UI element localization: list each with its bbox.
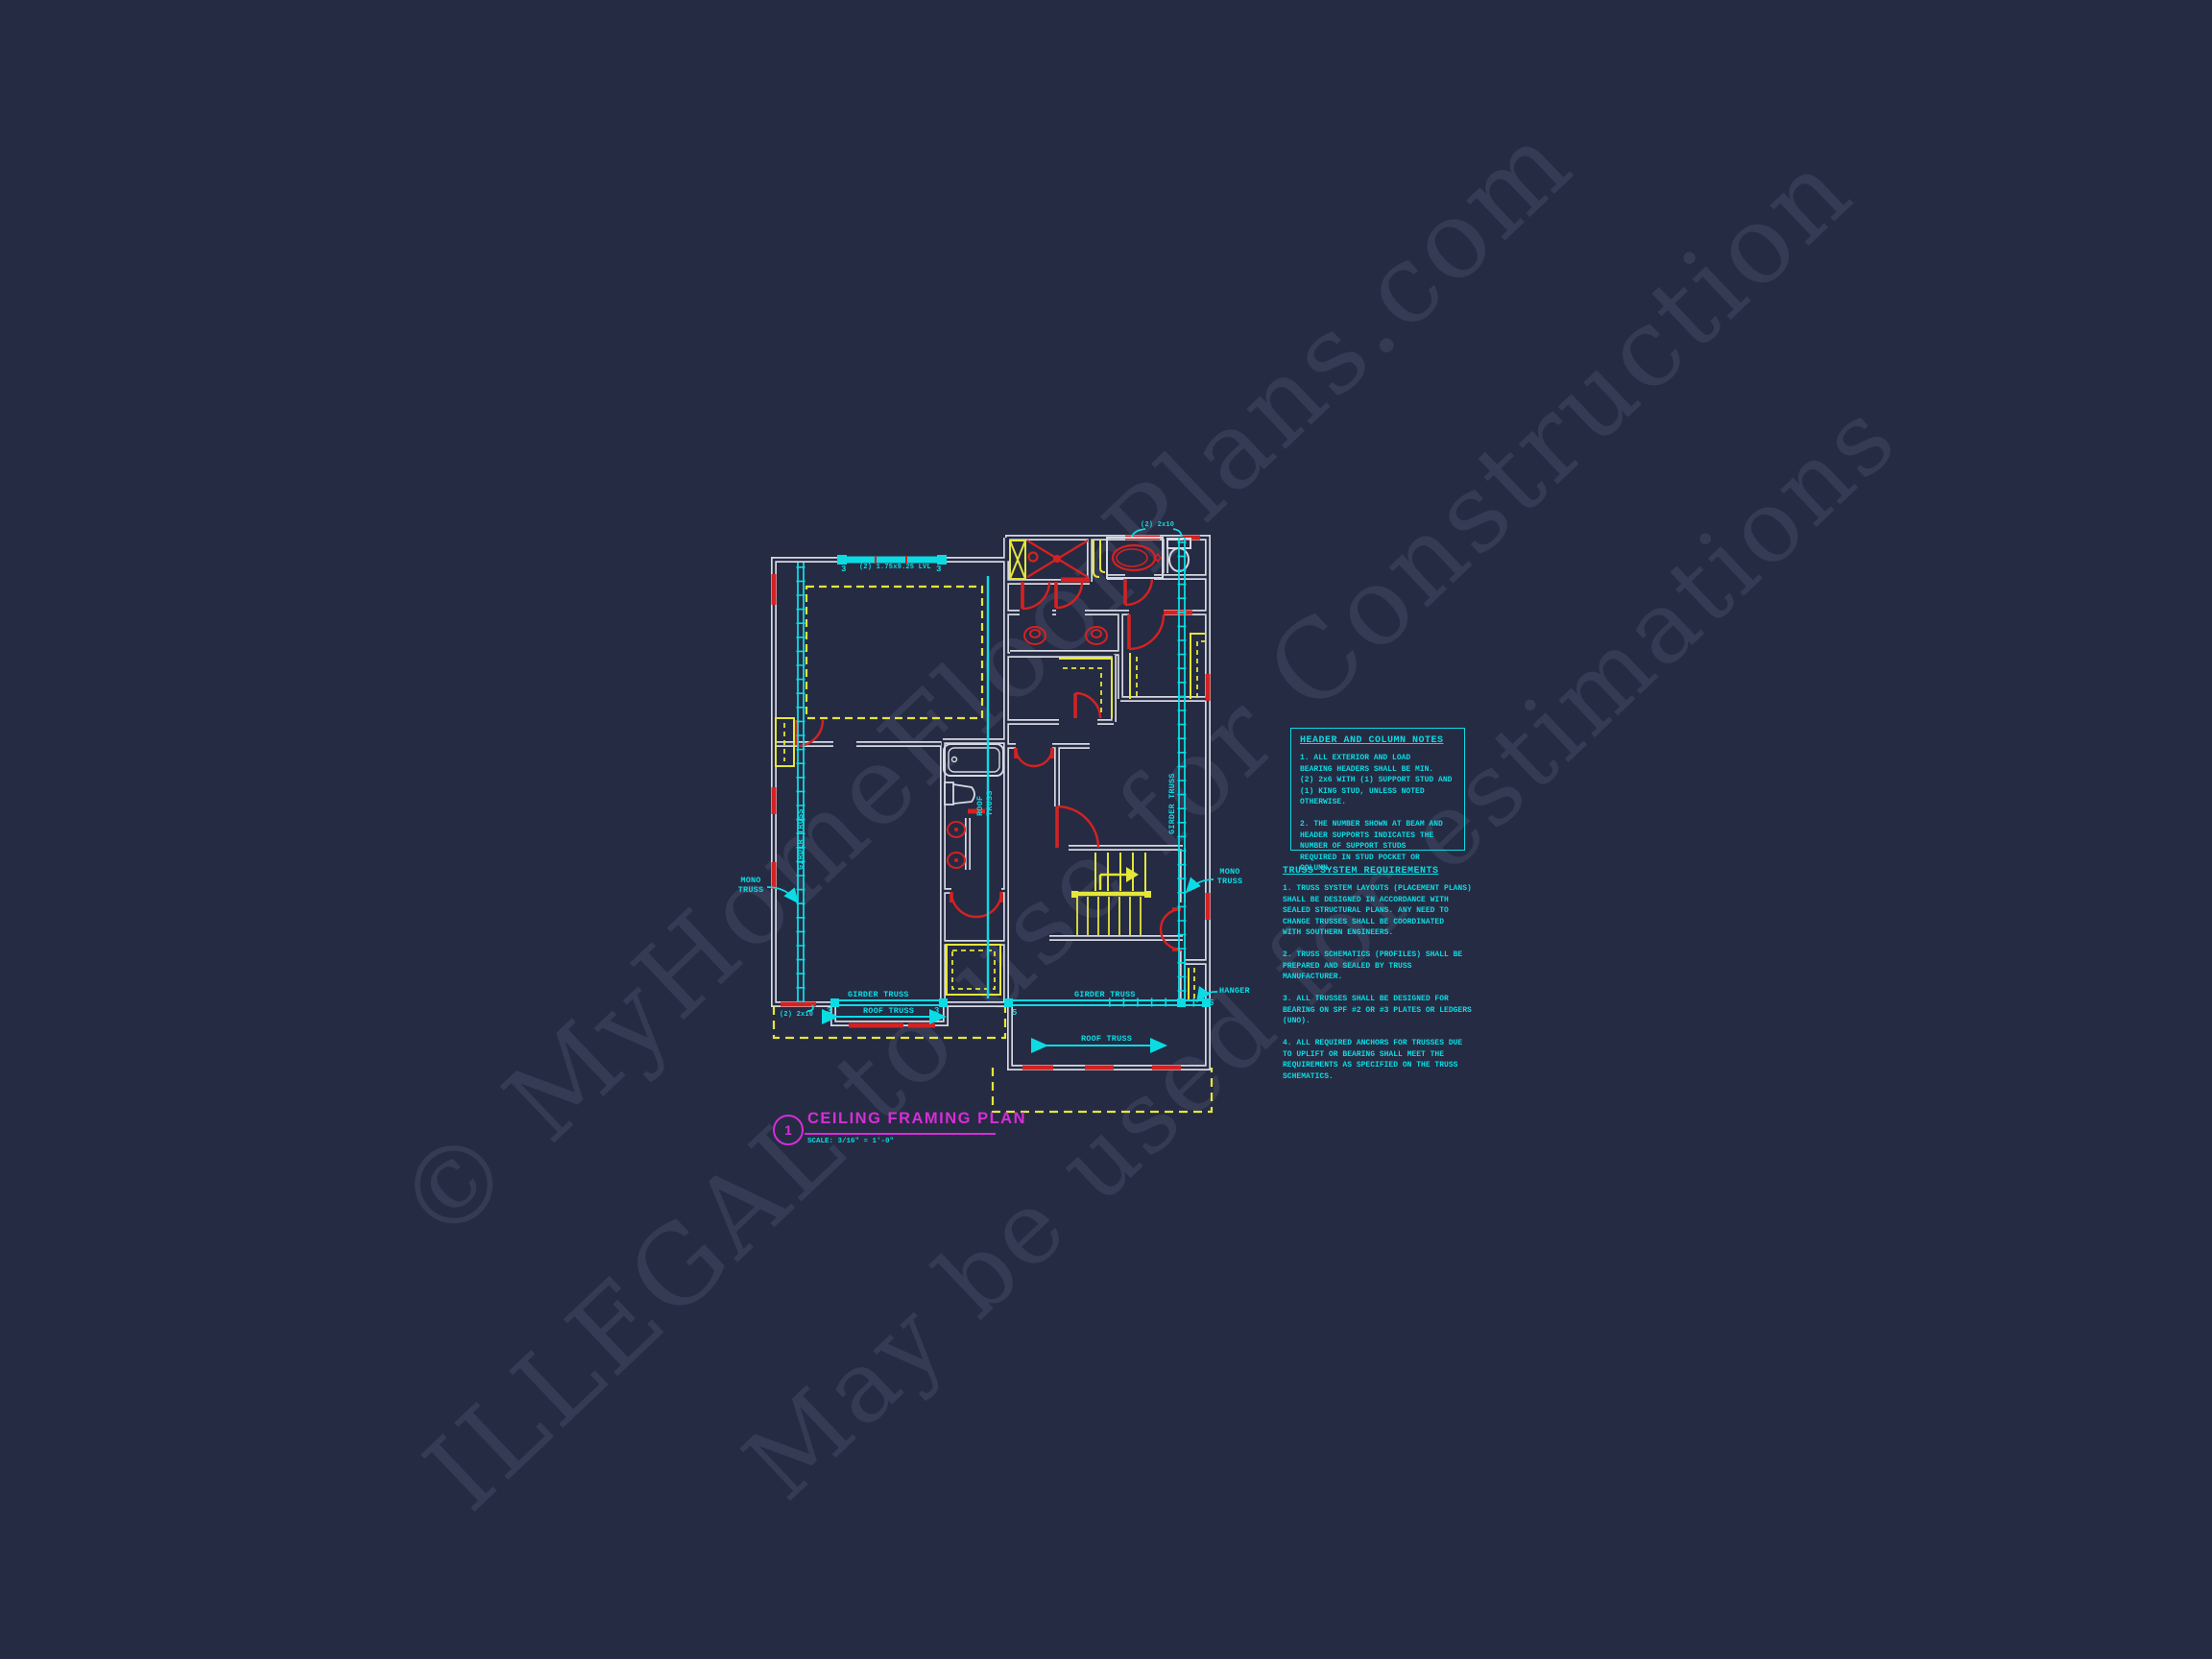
tray-ceiling-outline [806, 587, 982, 718]
header-2x10-bottom-label: (2) 2x10 [780, 1011, 813, 1021]
fixtures [944, 538, 1190, 868]
note-body: 1. ALL EXTERIOR AND LOAD BEARING HEADERS… [1300, 753, 1464, 875]
lvl-beam-label: (2) 1.75x9.25 LVL [859, 564, 931, 573]
girder-left [798, 563, 804, 1002]
roof-truss-vertical-label: ROOF TRUSS [976, 790, 995, 816]
stud-count: 5 [1209, 998, 1214, 1008]
stairs [1071, 853, 1151, 936]
girder-truss-right-label: GIRDER TRUSS [1168, 773, 1178, 834]
note-title: TRUSS SYSTEM REQUIREMENTS [1283, 866, 1486, 877]
vanity-sinks [1024, 627, 1107, 644]
detail-number-bubble: 1 [773, 1115, 804, 1145]
scale-note: SCALE: 3/16" = 1'-0" [807, 1138, 894, 1145]
stud-count: 3 [936, 565, 941, 574]
mono-truss-left-label: MONO TRUSS [733, 877, 768, 895]
girder-truss-lines [767, 529, 1217, 1046]
note-title: HEADER AND COLUMN NOTES [1300, 735, 1464, 746]
stud-count: 3 [841, 565, 846, 574]
note-body: 1. TRUSS SYSTEM LAYOUTS (PLACEMENT PLANS… [1283, 883, 1486, 1082]
stud-count: 3 [827, 1006, 831, 1016]
girder-truss-left-label: GIRDER TRUSS [797, 808, 806, 870]
floor-plan-drawing [0, 0, 2212, 1659]
mono-truss-right-label: MONO TRUSS [1213, 868, 1247, 886]
title-underline [805, 1133, 996, 1135]
girder-truss-bottom-right-label: GIRDER TRUSS [1074, 991, 1136, 1000]
roof-truss-bottom-left-label: ROOF TRUSS [863, 1007, 914, 1017]
shower [1027, 541, 1088, 577]
girder-right [1179, 538, 1185, 1002]
girder-truss-bottom-left-label: GIRDER TRUSS [848, 991, 909, 1000]
truss-system-requirements: TRUSS SYSTEM REQUIREMENTS 1. TRUSS SYSTE… [1283, 866, 1486, 1082]
hanger-label: HANGER [1219, 987, 1250, 997]
garden-tub [1107, 538, 1163, 578]
header-column-notes: HEADER AND COLUMN NOTES 1. ALL EXTERIOR … [1290, 728, 1465, 851]
page-title: CEILING FRAMING PLAN [807, 1110, 1026, 1128]
stud-count: 5 [1012, 1008, 1017, 1018]
rear-roof-outline [993, 1068, 1212, 1112]
header-2x10-top-label: (2) 2x10 [1141, 521, 1174, 531]
roof-truss-bottom-right-label: ROOF TRUSS [1081, 1035, 1132, 1045]
cad-sheet: © MyHomeFloorPlans.com ILLEGAL to use fo… [0, 0, 2212, 1659]
stud-count: 3 [934, 1006, 939, 1016]
